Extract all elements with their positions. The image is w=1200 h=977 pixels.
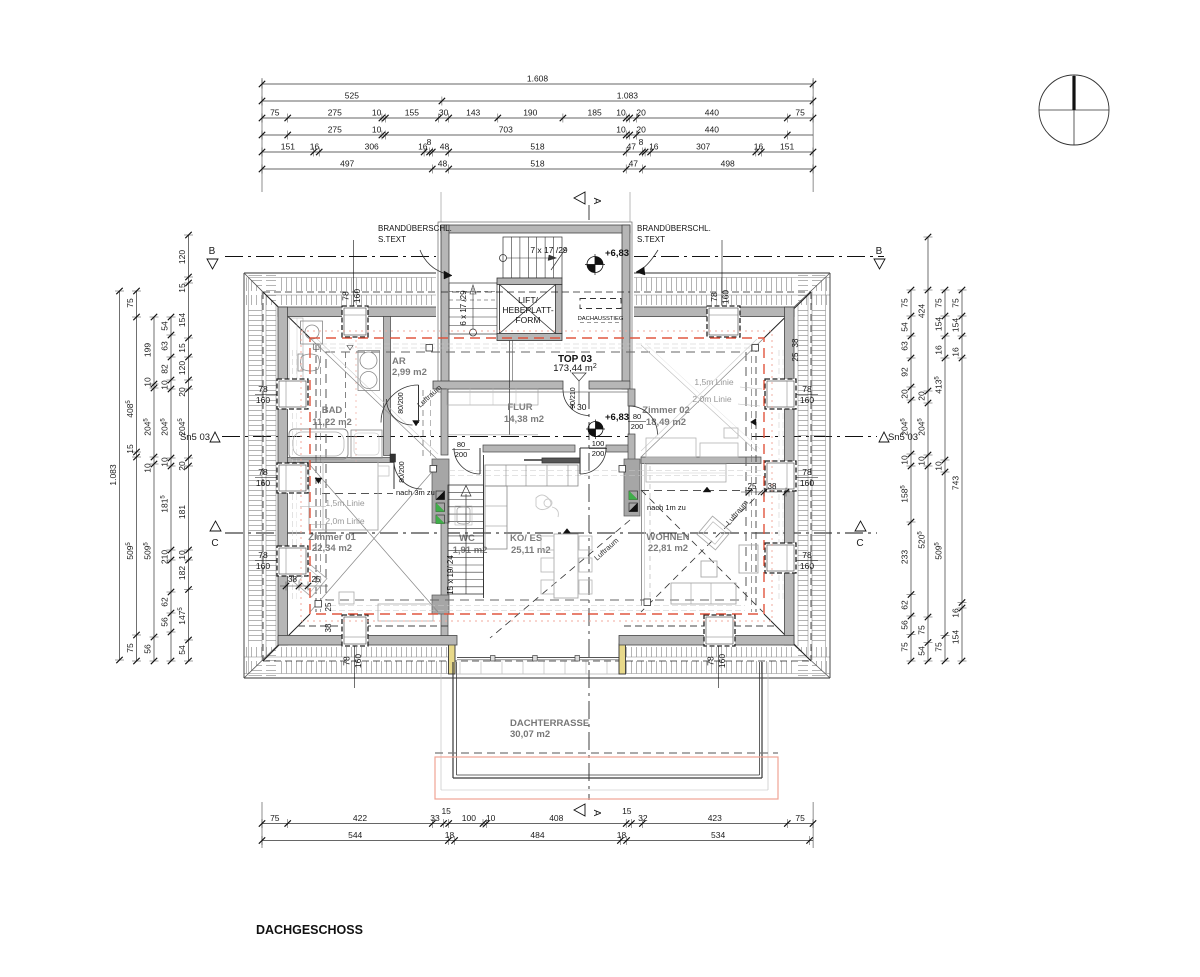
svg-text:16: 16 xyxy=(754,142,764,152)
svg-text:14,38 m2: 14,38 m2 xyxy=(504,414,544,425)
svg-text:25: 25 xyxy=(312,575,321,584)
svg-text:25,11 m2: 25,11 m2 xyxy=(511,545,551,556)
svg-text:6 x 17 /29: 6 x 17 /29 xyxy=(459,290,468,326)
svg-text:160: 160 xyxy=(800,395,814,405)
svg-text:78: 78 xyxy=(802,467,812,477)
svg-text:30,07 m2: 30,07 m2 xyxy=(510,729,550,740)
svg-text:7 x 17 /29: 7 x 17 /29 xyxy=(530,245,568,255)
svg-text:FLUR: FLUR xyxy=(507,402,532,413)
svg-text:80/200: 80/200 xyxy=(398,392,405,414)
svg-text:525: 525 xyxy=(345,91,359,101)
svg-text:160: 160 xyxy=(352,289,362,303)
svg-text:54: 54 xyxy=(160,321,170,331)
svg-text:16: 16 xyxy=(649,142,659,152)
svg-text:63: 63 xyxy=(160,341,170,351)
svg-text:LIFT/: LIFT/ xyxy=(518,295,538,305)
svg-text:56: 56 xyxy=(143,644,153,654)
svg-text:10: 10 xyxy=(934,461,944,471)
svg-text:2,99 m2: 2,99 m2 xyxy=(392,367,427,378)
svg-text:BRANDÜBERSCHL.: BRANDÜBERSCHL. xyxy=(637,224,711,233)
svg-text:WC: WC xyxy=(459,533,475,544)
svg-text:Zimmer 01: Zimmer 01 xyxy=(308,532,356,543)
svg-text:1.083: 1.083 xyxy=(617,91,639,101)
svg-text:16: 16 xyxy=(310,142,320,152)
svg-text:25: 25 xyxy=(748,482,757,491)
svg-text:54: 54 xyxy=(177,645,187,655)
svg-text:1.608: 1.608 xyxy=(527,74,549,84)
svg-text:63: 63 xyxy=(900,341,910,351)
svg-text:56: 56 xyxy=(900,620,910,630)
svg-text:160: 160 xyxy=(256,395,270,405)
svg-text:160: 160 xyxy=(256,561,270,571)
svg-text:38: 38 xyxy=(768,482,777,491)
svg-text:+6,83: +6,83 xyxy=(605,248,629,259)
svg-text:Sn5 03: Sn5 03 xyxy=(888,432,918,443)
svg-text:143: 143 xyxy=(466,108,480,118)
svg-text:20: 20 xyxy=(900,389,910,399)
svg-text:54: 54 xyxy=(900,322,910,332)
svg-text:424: 424 xyxy=(917,304,927,318)
svg-text:AR: AR xyxy=(392,356,406,367)
svg-text:423: 423 xyxy=(708,813,722,823)
svg-text:80: 80 xyxy=(457,440,465,449)
svg-text:75: 75 xyxy=(951,298,961,308)
svg-text:16: 16 xyxy=(951,347,961,357)
svg-text:155: 155 xyxy=(405,108,419,118)
svg-text:22,34 m2: 22,34 m2 xyxy=(312,543,352,554)
svg-text:54: 54 xyxy=(917,646,927,656)
svg-text:10: 10 xyxy=(616,125,626,135)
svg-text:10: 10 xyxy=(143,463,153,473)
svg-text:151: 151 xyxy=(780,142,794,152)
svg-text:80/200: 80/200 xyxy=(399,461,406,483)
svg-text:75: 75 xyxy=(900,298,910,308)
svg-text:BAD: BAD xyxy=(322,405,343,416)
svg-text:200: 200 xyxy=(592,449,605,458)
svg-text:190: 190 xyxy=(523,108,537,118)
svg-text:78: 78 xyxy=(258,384,268,394)
svg-text:15 x 19/ 24: 15 x 19/ 24 xyxy=(446,555,455,595)
svg-text:306: 306 xyxy=(365,142,379,152)
svg-text:154: 154 xyxy=(951,630,961,644)
svg-text:10: 10 xyxy=(160,380,170,390)
svg-text:92: 92 xyxy=(900,367,910,377)
svg-text:DACHTERRASSE: DACHTERRASSE xyxy=(510,718,589,729)
svg-text:151: 151 xyxy=(281,142,295,152)
svg-text:30: 30 xyxy=(439,108,449,118)
svg-text:T 30: T 30 xyxy=(570,402,587,412)
svg-text:534: 534 xyxy=(711,830,725,840)
svg-text:1.083: 1.083 xyxy=(108,464,118,486)
svg-text:497: 497 xyxy=(340,159,354,169)
svg-text:56: 56 xyxy=(160,617,170,627)
svg-text:233: 233 xyxy=(900,550,910,564)
svg-text:199: 199 xyxy=(143,343,153,357)
svg-text:A: A xyxy=(591,198,602,205)
svg-text:484: 484 xyxy=(530,830,544,840)
svg-text:78: 78 xyxy=(709,292,719,302)
svg-text:18,49 m2: 18,49 m2 xyxy=(646,417,686,428)
svg-text:C: C xyxy=(856,538,863,549)
svg-text:80: 80 xyxy=(633,412,641,421)
svg-text:78: 78 xyxy=(802,550,812,560)
svg-text:75: 75 xyxy=(125,298,135,308)
svg-text:BRANDÜBERSCHL.: BRANDÜBERSCHL. xyxy=(378,224,452,233)
svg-text:20: 20 xyxy=(177,387,187,397)
svg-text:10: 10 xyxy=(900,455,910,465)
svg-text:75: 75 xyxy=(270,108,280,118)
svg-text:78: 78 xyxy=(342,656,352,666)
svg-text:B: B xyxy=(876,246,883,257)
svg-text:440: 440 xyxy=(705,108,719,118)
svg-text:10: 10 xyxy=(616,108,626,118)
svg-text:185: 185 xyxy=(588,108,602,118)
svg-text:nach 3m zu: nach 3m zu xyxy=(396,488,435,497)
svg-text:78: 78 xyxy=(341,291,351,301)
svg-text:10: 10 xyxy=(160,457,170,467)
svg-text:20: 20 xyxy=(177,461,187,471)
svg-text:15: 15 xyxy=(441,806,451,816)
svg-text:8: 8 xyxy=(639,137,644,147)
svg-text:+6,83: +6,83 xyxy=(605,412,629,423)
svg-text:20: 20 xyxy=(636,125,646,135)
svg-text:743: 743 xyxy=(951,476,961,490)
svg-text:10: 10 xyxy=(917,456,927,466)
svg-text:100: 100 xyxy=(592,439,605,448)
svg-text:82: 82 xyxy=(160,364,170,374)
svg-text:10: 10 xyxy=(372,125,382,135)
svg-text:1,5m Linie: 1,5m Linie xyxy=(694,377,733,387)
svg-text:S.TEXT: S.TEXT xyxy=(378,235,406,244)
svg-text:75: 75 xyxy=(917,625,927,635)
svg-text:48: 48 xyxy=(438,159,448,169)
svg-text:154: 154 xyxy=(934,317,944,331)
svg-text:18: 18 xyxy=(617,830,627,840)
svg-text:160: 160 xyxy=(800,561,814,571)
svg-text:200: 200 xyxy=(455,450,468,459)
svg-text:160: 160 xyxy=(256,478,270,488)
svg-text:160: 160 xyxy=(717,654,727,668)
svg-text:78: 78 xyxy=(802,384,812,394)
svg-text:210: 210 xyxy=(160,550,170,564)
svg-text:B: B xyxy=(209,246,216,257)
svg-text:32: 32 xyxy=(638,813,648,823)
svg-text:15: 15 xyxy=(125,444,135,454)
svg-text:78: 78 xyxy=(706,656,716,666)
svg-text:182: 182 xyxy=(177,566,187,580)
svg-text:160: 160 xyxy=(721,290,731,304)
svg-text:HEBEPLATT-: HEBEPLATT- xyxy=(502,305,553,315)
svg-text:120: 120 xyxy=(177,250,187,264)
svg-text:703: 703 xyxy=(499,125,513,135)
svg-text:FORM: FORM xyxy=(515,315,540,325)
svg-text:173,44 m2: 173,44 m2 xyxy=(553,363,597,374)
svg-text:18: 18 xyxy=(445,830,455,840)
svg-text:62: 62 xyxy=(160,597,170,607)
svg-text:75: 75 xyxy=(125,643,135,653)
svg-text:2,0m Linie: 2,0m Linie xyxy=(325,516,364,526)
svg-text:16: 16 xyxy=(934,345,944,355)
svg-text:48: 48 xyxy=(440,142,450,152)
svg-text:307: 307 xyxy=(696,142,710,152)
svg-text:275: 275 xyxy=(328,125,342,135)
svg-text:38: 38 xyxy=(324,623,333,632)
svg-text:25: 25 xyxy=(324,602,333,611)
svg-text:10: 10 xyxy=(177,550,187,560)
svg-text:422: 422 xyxy=(353,813,367,823)
svg-text:22,81 m2: 22,81 m2 xyxy=(648,543,688,554)
svg-text:Sn5 03: Sn5 03 xyxy=(180,432,210,443)
svg-text:181: 181 xyxy=(177,505,187,519)
svg-text:78: 78 xyxy=(258,467,268,477)
svg-text:11,22 m2: 11,22 m2 xyxy=(312,417,352,428)
svg-text:C: C xyxy=(211,538,218,549)
svg-text:DACHGESCHOSS: DACHGESCHOSS xyxy=(256,923,363,937)
svg-text:440: 440 xyxy=(705,125,719,135)
svg-text:33: 33 xyxy=(430,813,440,823)
svg-text:75: 75 xyxy=(795,813,805,823)
svg-text:47: 47 xyxy=(627,142,637,152)
svg-text:275: 275 xyxy=(328,108,342,118)
svg-text:25: 25 xyxy=(791,352,800,361)
svg-text:16: 16 xyxy=(951,608,961,618)
svg-text:154: 154 xyxy=(951,318,961,332)
svg-text:20: 20 xyxy=(636,108,646,118)
svg-text:75: 75 xyxy=(934,298,944,308)
svg-text:154: 154 xyxy=(177,313,187,327)
svg-text:62: 62 xyxy=(900,600,910,610)
svg-text:nach 1m zu: nach 1m zu xyxy=(647,503,686,512)
svg-text:1,5m Linie: 1,5m Linie xyxy=(325,498,364,508)
svg-text:544: 544 xyxy=(348,830,362,840)
svg-text:WOHNEN: WOHNEN xyxy=(646,532,689,543)
svg-text:100: 100 xyxy=(462,813,476,823)
svg-text:75: 75 xyxy=(795,108,805,118)
svg-text:518: 518 xyxy=(530,142,544,152)
svg-text:15: 15 xyxy=(177,343,187,353)
svg-text:498: 498 xyxy=(721,159,735,169)
svg-text:15: 15 xyxy=(177,283,187,293)
svg-text:10: 10 xyxy=(143,377,153,387)
svg-text:20: 20 xyxy=(917,391,927,401)
svg-text:75: 75 xyxy=(934,642,944,652)
svg-text:47: 47 xyxy=(629,159,639,169)
svg-text:120: 120 xyxy=(177,361,187,375)
svg-text:160: 160 xyxy=(353,654,363,668)
svg-text:A: A xyxy=(591,810,602,817)
svg-text:15: 15 xyxy=(622,806,632,816)
svg-text:160: 160 xyxy=(800,478,814,488)
svg-text:DACHAUSSTIEG: DACHAUSSTIEG xyxy=(578,316,624,322)
svg-text:75: 75 xyxy=(900,642,910,652)
svg-text:75: 75 xyxy=(270,813,280,823)
svg-text:10: 10 xyxy=(486,813,496,823)
svg-text:38: 38 xyxy=(791,338,800,347)
svg-text:408: 408 xyxy=(549,813,563,823)
svg-text:S.TEXT: S.TEXT xyxy=(637,235,665,244)
svg-text:KO/ ES: KO/ ES xyxy=(510,533,542,544)
svg-text:38: 38 xyxy=(288,575,297,584)
svg-text:200: 200 xyxy=(631,422,644,431)
svg-text:8: 8 xyxy=(427,137,432,147)
svg-text:2,0m Linie: 2,0m Linie xyxy=(692,394,731,404)
svg-text:10: 10 xyxy=(372,108,382,118)
svg-text:518: 518 xyxy=(530,159,544,169)
svg-text:78: 78 xyxy=(258,550,268,560)
